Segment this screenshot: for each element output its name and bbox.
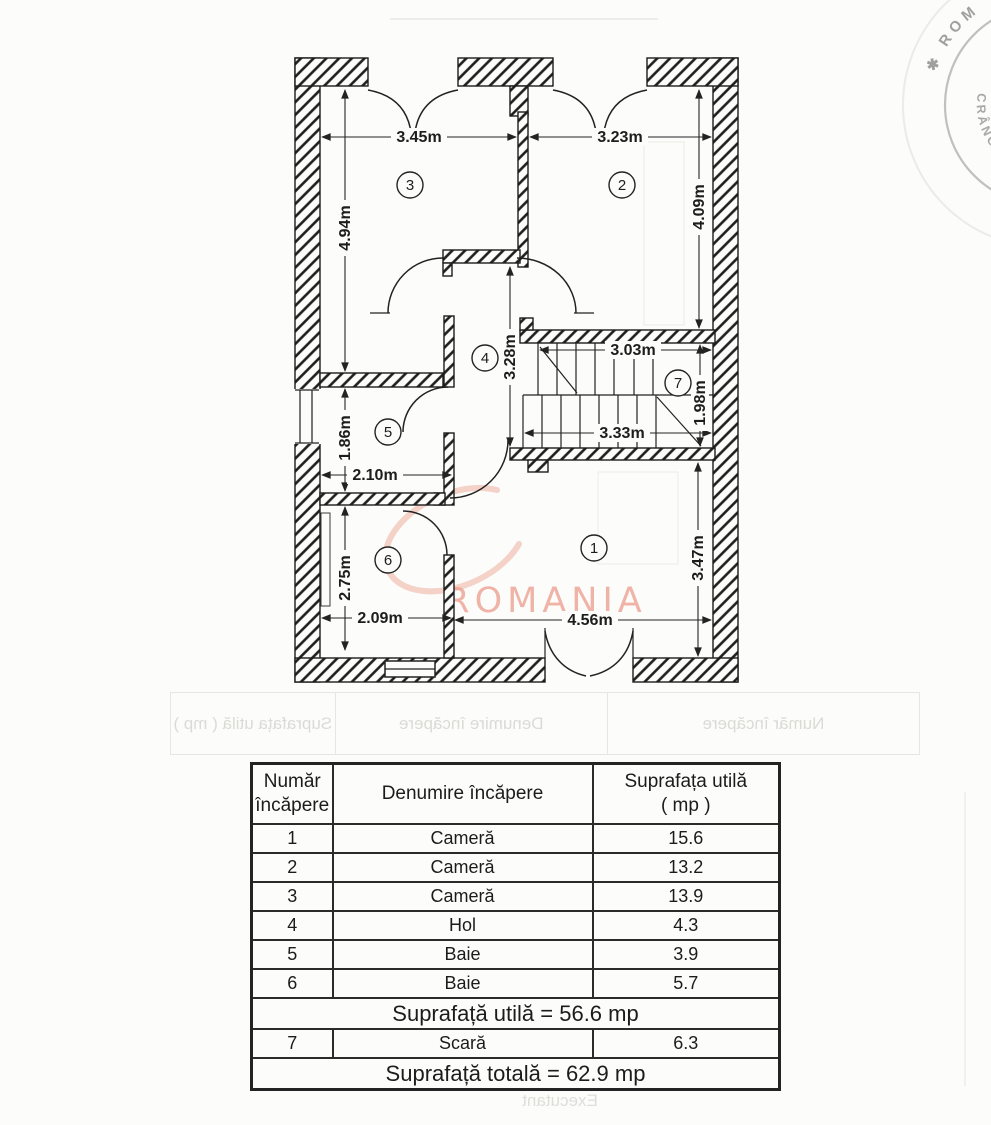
col-header-number-line1: Număr xyxy=(264,771,321,792)
cell-room-number: 4 xyxy=(252,911,333,940)
col-header-number: Număr încăpere xyxy=(252,764,333,825)
dim-stairs-height: 1.98m xyxy=(692,380,709,425)
stamp-inner-label: CRÂNGUR xyxy=(974,93,991,168)
cell-room-area: 6.3 xyxy=(593,1029,780,1058)
dim-stairs-bottom-width: 3.33m xyxy=(599,425,644,442)
col-header-name: Denumire încăpere xyxy=(333,764,593,825)
dim-baie6-width: 2.09m xyxy=(357,610,402,627)
table-row: 3 Cameră 13.9 xyxy=(252,882,780,911)
bleed-through-table-header: Număr încăpere Denumire încăpere Suprafa… xyxy=(170,692,920,755)
dim-room2-width: 3.23m xyxy=(597,129,642,146)
cell-room-number: 2 xyxy=(252,853,333,882)
col-header-area-line2: ( mp ) xyxy=(661,795,711,816)
cell-room-name: Baie xyxy=(333,940,593,969)
total-row: Suprafață totală = 62.9 mp xyxy=(252,1058,780,1090)
subtotal-row: Suprafață utilă = 56.6 mp xyxy=(252,998,780,1029)
room-label-6: 6 xyxy=(384,552,392,569)
romania-watermark: ROMANIA xyxy=(385,488,646,621)
cell-room-name: Cameră xyxy=(333,853,593,882)
bleed-through-executant: Executant xyxy=(490,1091,630,1111)
dim-baie5-width: 2.10m xyxy=(352,467,397,484)
ghost-col-area: Suprafața utilă ( mp ) xyxy=(171,693,336,754)
ghost-col-number: Număr încăpere xyxy=(608,693,919,754)
dim-room2-height: 4.09m xyxy=(691,184,708,229)
room-label-7: 7 xyxy=(674,375,682,392)
table-row: 6 Baie 5.7 xyxy=(252,969,780,998)
room-label-3: 3 xyxy=(406,177,414,194)
col-header-area-line1: Suprafața utilă xyxy=(624,771,747,792)
cell-room-area: 15.6 xyxy=(593,824,780,853)
cell-room-number: 3 xyxy=(252,882,333,911)
cell-room-number: 6 xyxy=(252,969,333,998)
total-text: Suprafață totală = 62.9 mp xyxy=(252,1058,780,1090)
dim-baie5-height: 1.86m xyxy=(337,415,354,460)
cell-room-area: 4.3 xyxy=(593,911,780,940)
cell-room-number: 1 xyxy=(252,824,333,853)
dim-room3-height: 4.94m xyxy=(337,205,354,250)
dim-hall-height: 3.28m xyxy=(502,334,519,379)
cell-room-name: Cameră xyxy=(333,882,593,911)
cell-room-number: 7 xyxy=(252,1029,333,1058)
cell-room-area: 13.9 xyxy=(593,882,780,911)
room-label-4: 4 xyxy=(481,350,489,367)
room-label-1: 1 xyxy=(590,540,598,557)
room-label-5: 5 xyxy=(384,424,392,441)
cell-room-name: Cameră xyxy=(333,824,593,853)
scanned-floorplan-page: ✱ ROM CRÂNGUR ROMANIA xyxy=(0,0,991,1125)
room-label-2: 2 xyxy=(618,177,626,194)
subtotal-text: Suprafață utilă = 56.6 mp xyxy=(252,998,780,1029)
cell-room-name: Baie xyxy=(333,969,593,998)
cell-room-name: Scară xyxy=(333,1029,593,1058)
dim-room3-width: 3.45m xyxy=(396,129,441,146)
table-row-stairs: 7 Scară 6.3 xyxy=(252,1029,780,1058)
dim-baie6-height: 2.75m xyxy=(337,555,354,600)
cell-room-number: 5 xyxy=(252,940,333,969)
ghost-col-name: Denumire încăpere xyxy=(336,693,608,754)
dim-stairs-top-width: 3.03m xyxy=(610,342,655,359)
table-row: 1 Cameră 15.6 xyxy=(252,824,780,853)
table-row: 2 Cameră 13.2 xyxy=(252,853,780,882)
cell-room-name: Hol xyxy=(333,911,593,940)
area-table: Număr încăpere Denumire încăpere Suprafa… xyxy=(250,762,781,1091)
table-row: 4 Hol 4.3 xyxy=(252,911,780,940)
col-header-area: Suprafața utilă ( mp ) xyxy=(593,764,780,825)
round-stamp: ✱ ROM CRÂNGUR xyxy=(903,0,991,247)
col-header-number-line2: încăpere xyxy=(255,795,329,816)
table-header-row: Număr încăpere Denumire încăpere Suprafa… xyxy=(252,764,780,825)
cell-room-area: 5.7 xyxy=(593,969,780,998)
cell-room-area: 3.9 xyxy=(593,940,780,969)
dim-room1-height: 3.47m xyxy=(690,535,707,580)
table-row: 5 Baie 3.9 xyxy=(252,940,780,969)
dim-room1-width: 4.56m xyxy=(567,612,612,629)
cell-room-area: 13.2 xyxy=(593,853,780,882)
stamp-outer-label: ✱ ROM xyxy=(924,1,983,74)
